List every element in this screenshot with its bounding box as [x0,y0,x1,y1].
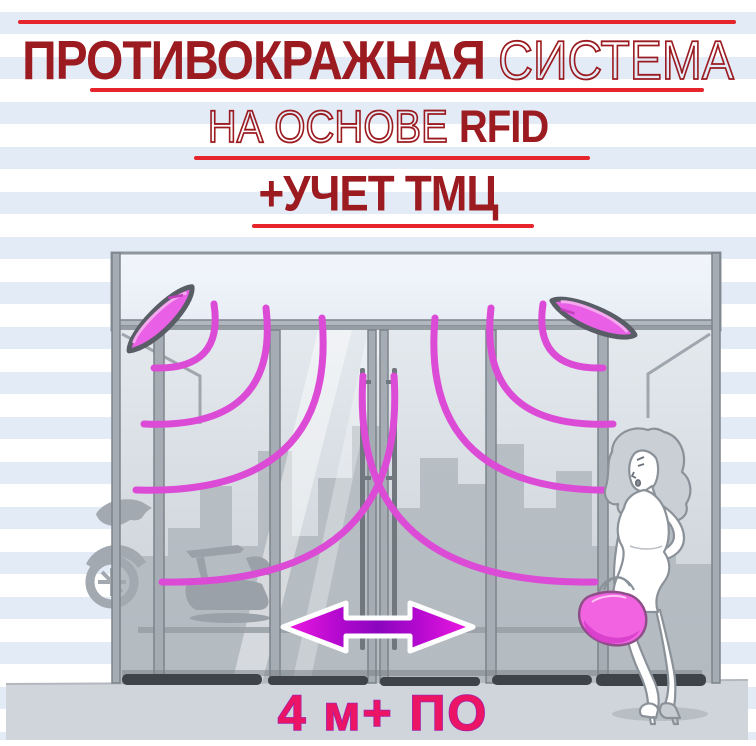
poster: ПРОТИВОКРАЖНАЯ СИСТЕМА НА ОСНОВЕ RFID +У… [0,0,756,746]
title-line-2: НА ОСНОВЕ RFID [0,102,756,147]
caption-door-width: 4 м+ ПО [278,685,489,741]
fascia [112,253,720,330]
title-line-1: ПРОТИВОКРАЖНАЯ СИСТЕМА [0,30,756,85]
title-line-3: +УЧЕТ ТМЦ [0,166,756,216]
title-system: СИСТЕМА [498,31,734,91]
storefront-illustration: 4 м+ ПО [0,246,756,746]
title-rfid: RFID [459,102,548,152]
rule-under-title [90,88,704,92]
base-shadows [122,670,706,686]
top-rule [18,20,736,24]
rule-under-rfid [194,156,590,160]
title-inventory: +УЧЕТ ТМЦ [258,166,497,222]
title-antitheft: ПРОТИВОКРАЖНАЯ [22,31,485,91]
rule-under-inventory [252,224,534,228]
title-based-on: НА ОСНОВЕ [208,102,448,152]
